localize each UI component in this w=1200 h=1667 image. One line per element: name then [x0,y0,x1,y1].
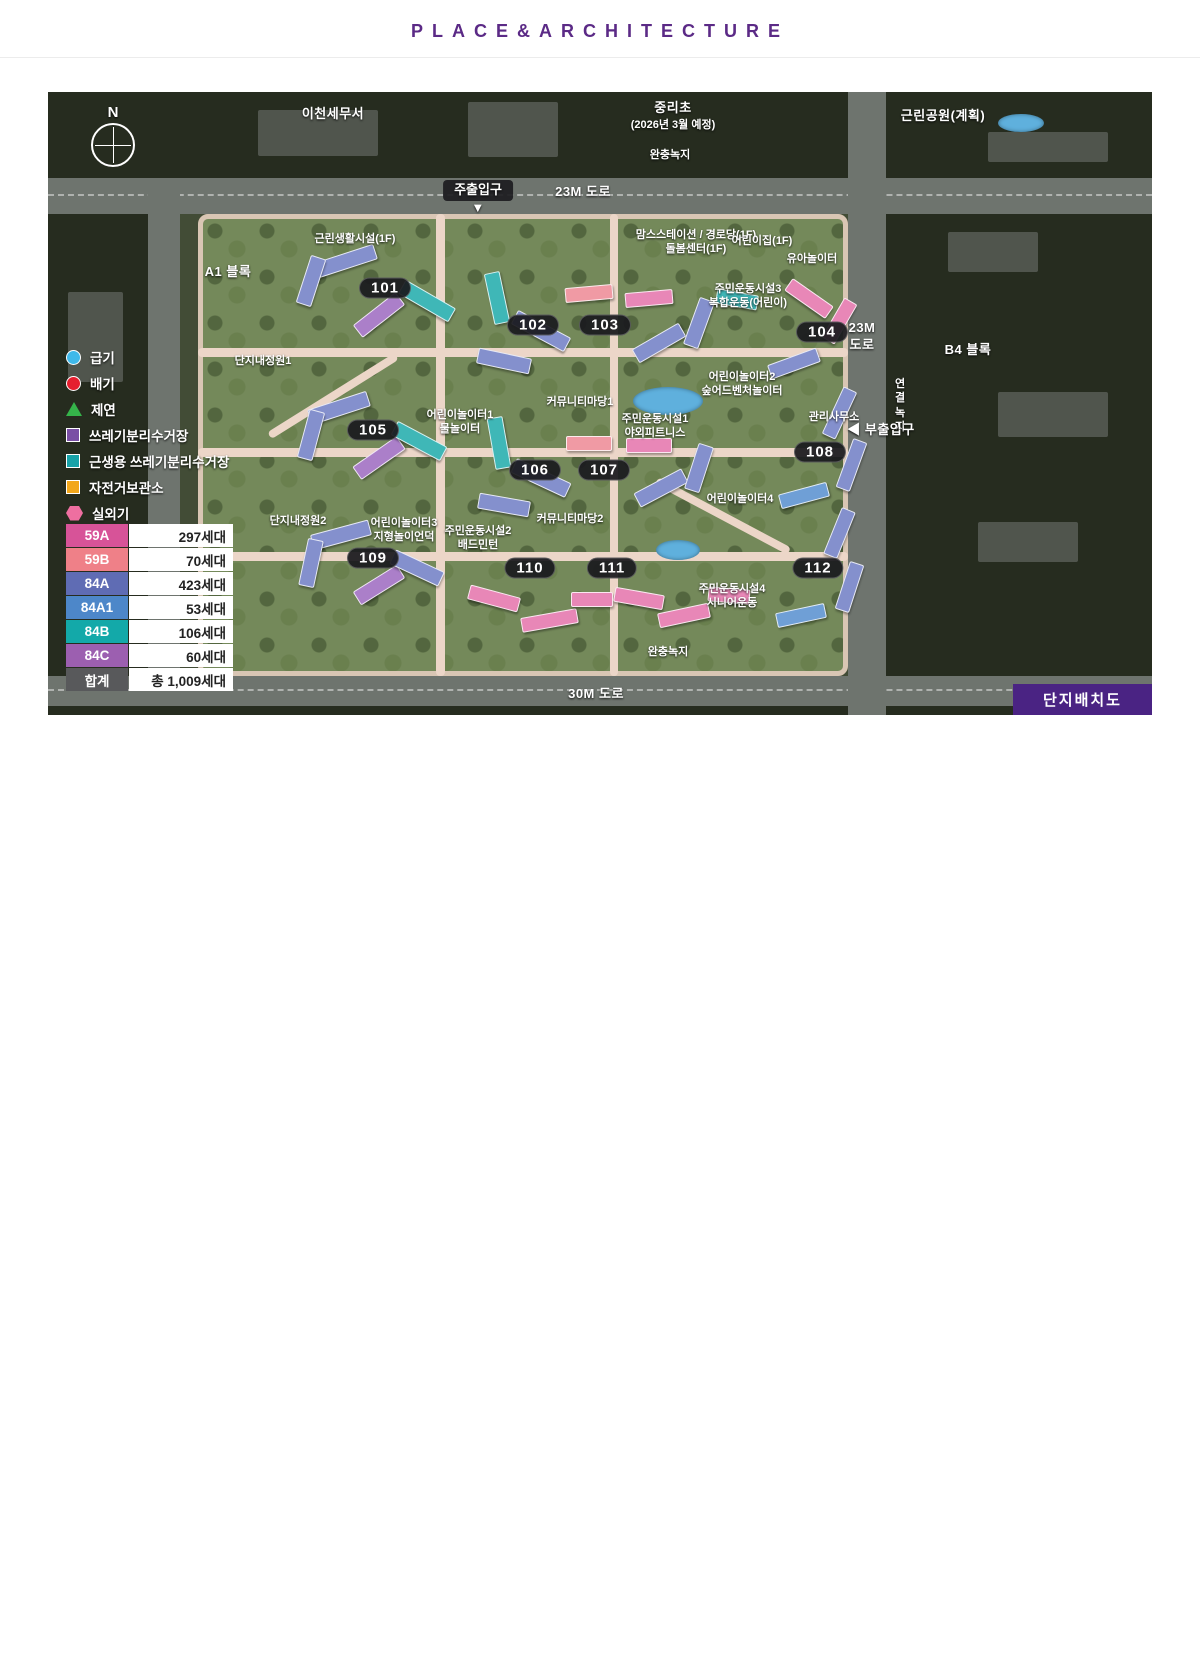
unit-type-cell: 84A [66,572,128,595]
map-label: 어린이놀이터2 숲어드벤처놀이터 [702,370,783,399]
unit-table-row: 합계총 1,009세대 [66,668,233,691]
building-wing [571,592,613,607]
building-badge-106: 106 [509,460,561,481]
main-entrance-label: 주출입구 [443,180,513,201]
자전거보관소-icon [66,480,80,494]
map-label: ◀ 부출입구 [847,422,914,439]
제연-icon [66,402,82,416]
unit-count-cell: 70세대 [129,548,233,571]
legend-item: 자전거보관소 [66,474,229,500]
pond [656,540,700,560]
map-label: 중리초 [654,100,691,117]
map-label: B4 블록 [945,342,992,359]
map-label: 어린이놀이터1 물놀이터 [427,408,494,437]
map-label: 근린생활시설(1F) [315,232,396,246]
legend-label: 실외기 [92,503,129,523]
unit-count-cell: 297세대 [129,524,233,547]
compass-dial [91,123,135,167]
배기-icon [66,376,81,391]
unit-type-cell: 84B [66,620,128,643]
site-plan-map: 101102103104105106107108109110111112 이천세… [48,92,1152,715]
map-label: 완충녹지 [650,148,690,162]
building-badge-109: 109 [347,548,399,569]
building-badge-110: 110 [504,558,555,579]
brochure-page: PLACE&ARCHITECTURE [0,0,1200,1667]
building-wing [566,436,612,451]
map-label: ▼ [471,200,484,217]
compass-n: N [88,104,138,121]
unit-type-cell: 합계 [66,668,128,691]
unit-type-cell: 84A1 [66,596,128,619]
pond [998,114,1044,132]
unit-type-cell: 59B [66,548,128,571]
map-label: 어린이집(1F) [732,234,793,248]
unit-count-cell: 60세대 [129,644,233,667]
map-label: 어린이놀이터4 [707,492,774,506]
building-badge-102: 102 [507,315,559,336]
map-legend: 급기배기제연쓰레기분리수거장근생용 쓰레기분리수거장자전거보관소실외기 [66,344,229,526]
map-label: 주민운동시설4 시니어운동 [699,582,766,611]
building-badge-111: 111 [587,558,637,579]
map-label: 커뮤니티마당1 [547,395,614,409]
map-road-right [848,92,886,715]
map-label: A1 블록 [205,264,252,281]
map-label: 30M 도로 [568,686,624,703]
unit-type-table: 59A297세대59B70세대84A423세대84A153세대84B106세대8… [66,524,233,692]
legend-item: 쓰레기분리수거장 [66,422,229,448]
page-header: PLACE&ARCHITECTURE [0,0,1200,58]
footprint [948,232,1038,272]
map-tag: 단지배치도 [1013,684,1152,715]
legend-label: 쓰레기분리수거장 [89,425,188,445]
building-badge-108: 108 [794,442,846,463]
map-label: 주민운동시설2 배드민턴 [445,524,512,553]
unit-count-cell: 106세대 [129,620,233,643]
map-label: 관리사무소 [809,410,860,424]
unit-table-row: 84A423세대 [66,572,233,595]
map-label: 23M 도로 [555,184,611,201]
map-label: 어린이놀이터3 지형놀이언덕 [371,516,438,545]
legend-item: 제연 [66,396,229,422]
compass: N [88,104,138,167]
unit-count-cell: 423세대 [129,572,233,595]
map-label: 완충녹지 [648,645,688,659]
building-badge-107: 107 [578,460,630,481]
building-badge-112: 112 [792,558,843,579]
unit-table-row: 59B70세대 [66,548,233,571]
unit-count-cell: 총 1,009세대 [129,668,233,691]
walkway [198,348,848,357]
legend-label: 근생용 쓰레기분리수거장 [89,451,229,471]
unit-count-cell: 53세대 [129,596,233,619]
legend-label: 자전거보관소 [89,477,164,497]
map-label: 단지내정원2 [270,514,327,528]
legend-label: 배기 [90,373,115,393]
map-dim-bottom [48,706,1152,715]
급기-icon [66,350,81,365]
unit-table-row: 84A153세대 [66,596,233,619]
walkway [198,448,848,457]
legend-item: 근생용 쓰레기분리수거장 [66,448,229,474]
building-badge-105: 105 [347,420,399,441]
building-badge-101: 101 [359,278,411,299]
legend-item: 급기 [66,344,229,370]
building-badge-104: 104 [796,322,848,343]
실외기-icon [66,506,83,521]
map-label: (2026년 3월 예정) [631,118,716,132]
pond [633,387,703,415]
legend-item: 배기 [66,370,229,396]
unit-type-cell: 84C [66,644,128,667]
map-label: 커뮤니티마당2 [537,512,604,526]
unit-table-row: 84B106세대 [66,620,233,643]
building-badge-103: 103 [579,315,631,336]
map-label: 이천세무서 [302,106,364,123]
근생용 쓰레기분리수거장-icon [66,454,80,468]
unit-table-row: 84C60세대 [66,644,233,667]
page-title: PLACE&ARCHITECTURE [0,0,1200,42]
legend-item: 실외기 [66,500,229,526]
map-label: 유아놀이터 [787,252,838,266]
footprint [978,522,1078,562]
map-label: 23M 도로 [849,320,876,354]
쓰레기분리수거장-icon [66,428,80,442]
unit-type-cell: 59A [66,524,128,547]
map-label: 주민운동시설3 복합운동(어린이) [709,282,787,311]
legend-label: 제연 [91,399,116,419]
map-dim-top [48,92,1152,178]
map-label: 단지내정원1 [235,354,292,368]
map-label: 주민운동시설1 야외피트니스 [622,412,689,441]
map-label: 근린공원(계획) [901,108,985,125]
footprint [998,392,1108,437]
footprint [988,132,1108,162]
footprint [468,102,558,157]
legend-label: 급기 [90,347,115,367]
unit-table-row: 59A297세대 [66,524,233,547]
